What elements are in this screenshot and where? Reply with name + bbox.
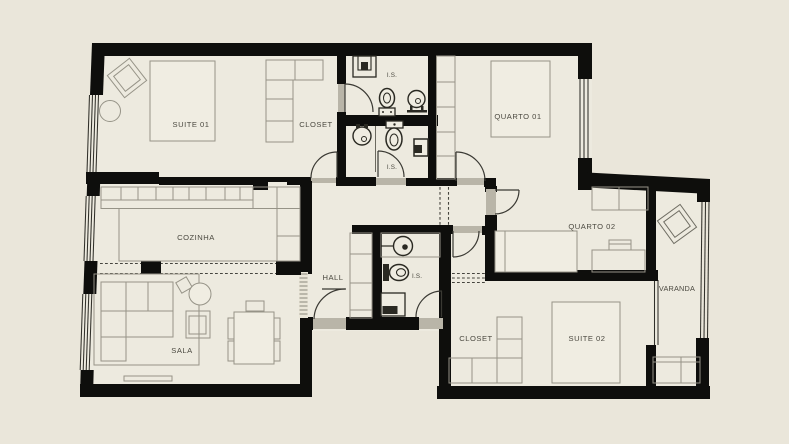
svg-text:SALA: SALA xyxy=(171,346,193,355)
svg-text:SUITE 01: SUITE 01 xyxy=(173,120,210,129)
svg-text:I.S.: I.S. xyxy=(387,164,397,171)
svg-text:SUITE 02: SUITE 02 xyxy=(569,334,606,343)
svg-text:QUARTO 02: QUARTO 02 xyxy=(568,222,615,231)
svg-text:COZINHA: COZINHA xyxy=(177,233,215,242)
svg-text:CLOSET: CLOSET xyxy=(299,120,332,129)
svg-text:I.S.: I.S. xyxy=(412,273,422,280)
svg-text:CLOSET: CLOSET xyxy=(459,334,492,343)
svg-text:HALL: HALL xyxy=(323,273,344,282)
svg-text:I.S.: I.S. xyxy=(387,72,397,79)
svg-text:VARANDA: VARANDA xyxy=(659,284,695,293)
svg-text:QUARTO 01: QUARTO 01 xyxy=(494,112,541,121)
